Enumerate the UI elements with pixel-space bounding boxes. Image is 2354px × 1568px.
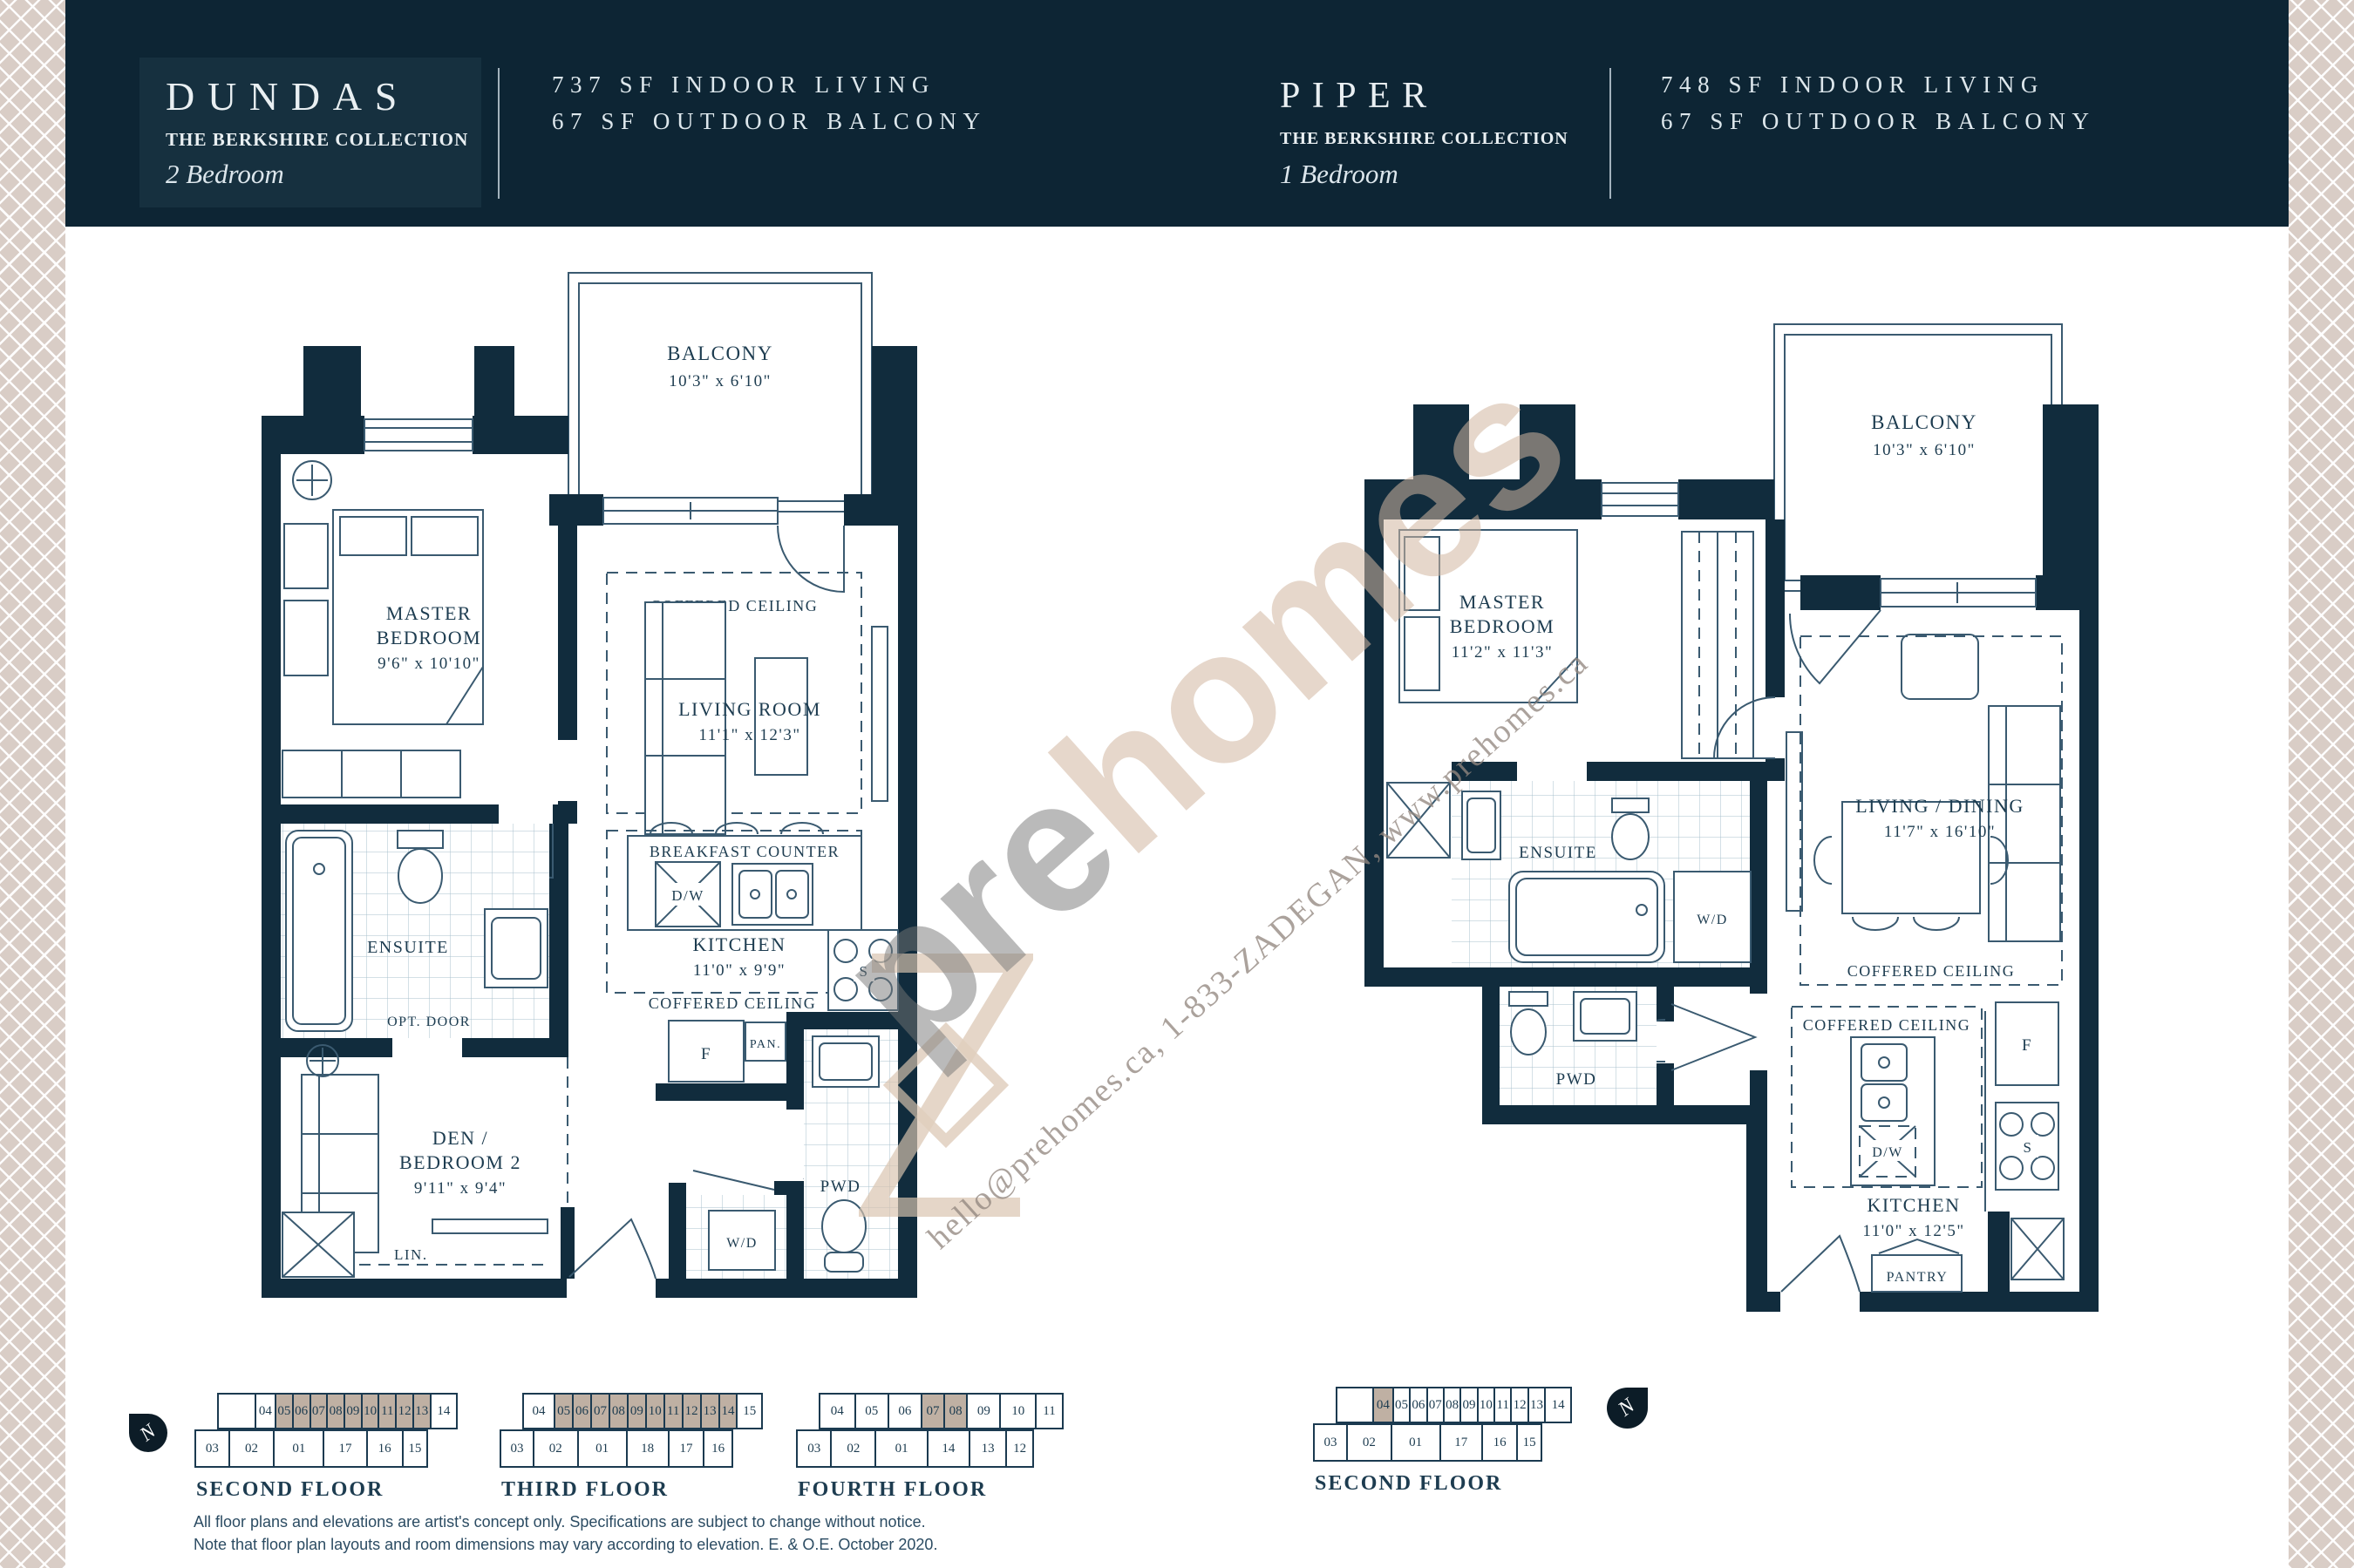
dundas-wd-label: W/D xyxy=(726,1236,758,1251)
header-divider-right xyxy=(1609,68,1611,199)
unit-cell-08: 08 xyxy=(1443,1387,1461,1423)
unit-cell-07: 07 xyxy=(310,1393,329,1429)
unit-cell-08: 08 xyxy=(943,1393,968,1429)
unit-cell-14: 14 xyxy=(927,1429,970,1468)
unit-cell-10: 10 xyxy=(361,1393,380,1429)
dundas-sf-outdoor: 67 SF OUTDOOR BALCONY xyxy=(552,108,987,135)
unit-cell-01: 01 xyxy=(874,1429,929,1468)
piper-coffered-kitchen-label: COFFERED CEILING xyxy=(1803,1016,1971,1034)
piper-wd-label: W/D xyxy=(1697,913,1728,927)
piper-plan-name: PIPER xyxy=(1280,75,1439,117)
unit-cell-13: 13 xyxy=(969,1429,1007,1468)
unit-cell-07: 07 xyxy=(1426,1387,1445,1423)
unit-cell-11: 11 xyxy=(1035,1393,1064,1429)
unit-cell-05: 05 xyxy=(1392,1387,1411,1423)
piper-living-dining: COFFERED CEILING LIVING / DINING 11'7" x… xyxy=(1786,635,2062,985)
unit-cell xyxy=(217,1393,256,1429)
unit-cell-15: 15 xyxy=(736,1393,763,1429)
unit-cell-10: 10 xyxy=(1477,1387,1495,1423)
piper-balcony-dims: 10'3" x 6'10" xyxy=(1873,441,1976,459)
piper-stove-label: S xyxy=(2024,1139,2033,1156)
unit-cell-09: 09 xyxy=(627,1393,647,1429)
dundas-den-label-2: BEDROOM 2 xyxy=(399,1151,521,1173)
unit-cell-14: 14 xyxy=(430,1393,458,1429)
unit-cell-10: 10 xyxy=(645,1393,665,1429)
unit-cell-11: 11 xyxy=(1493,1387,1512,1423)
dundas-kitchen-dims: 11'0" x 9'9" xyxy=(693,961,786,980)
dundas-master-label-1: MASTER xyxy=(386,602,472,624)
unit-cell-09: 09 xyxy=(344,1393,363,1429)
dundas-sf-indoor: 737 SF INDOOR LIVING xyxy=(552,71,935,98)
unit-cell-06: 06 xyxy=(292,1393,311,1429)
floor-locator: 0405060708091011030201141312FOURTH FLOOR xyxy=(798,1393,1064,1502)
unit-cell-09: 09 xyxy=(1459,1387,1478,1423)
dundas-living-dims: 11'1" x 12'3" xyxy=(698,726,800,744)
unit-cell-14: 14 xyxy=(1544,1387,1572,1423)
dundas-breakfast-label: BREAKFAST COUNTER xyxy=(650,843,840,860)
piper-pwd-label: PWD xyxy=(1556,1070,1597,1089)
unit-cell-15: 15 xyxy=(1516,1423,1542,1462)
floor-locator-title: FOURTH FLOOR xyxy=(798,1478,1064,1502)
disclaimer-line-2: Note that floor plan layouts and room di… xyxy=(194,1533,937,1556)
unit-cell-01: 01 xyxy=(577,1429,628,1468)
header-divider-left xyxy=(498,68,500,199)
unit-cell-05: 05 xyxy=(275,1393,294,1429)
piper-dw-label: D/W xyxy=(1872,1145,1903,1160)
unit-cell-16: 16 xyxy=(703,1429,733,1468)
unit-cell-08: 08 xyxy=(609,1393,629,1429)
unit-cell-10: 10 xyxy=(999,1393,1037,1429)
dundas-master-label-2: BEDROOM xyxy=(377,627,482,648)
compass-north-icon: N xyxy=(1607,1388,1648,1429)
unit-cell-12: 12 xyxy=(395,1393,414,1429)
unit-cell-12: 12 xyxy=(1510,1387,1528,1423)
piper-master-dims: 11'2" x 11'3" xyxy=(1452,643,1553,662)
dundas-living-room: COFFERED CEILING LIVING ROOM 11'1" x 12'… xyxy=(607,573,888,834)
unit-cell-11: 11 xyxy=(663,1393,684,1429)
unit-cell-15: 15 xyxy=(402,1429,428,1468)
unit-cell-11: 11 xyxy=(378,1393,397,1429)
dundas-master-bedroom: MASTER BEDROOM 9'6" x 10'10" xyxy=(282,461,483,798)
piper-balcony: BALCONY 10'3" x 6'10" xyxy=(1774,324,2062,591)
piper-fridge-label: F xyxy=(2022,1036,2032,1055)
piper-coffered-living-label: COFFERED CEILING xyxy=(1847,962,2016,980)
dundas-living-label: LIVING ROOM xyxy=(678,698,821,720)
unit-cell-12: 12 xyxy=(1005,1429,1034,1468)
dundas-floor-plan: BALCONY 10'3" x 6'10" xyxy=(262,266,942,1312)
dundas-balcony-label: BALCONY xyxy=(667,343,773,364)
unit-cell-06: 06 xyxy=(888,1393,922,1429)
unit-cell-13: 13 xyxy=(412,1393,432,1429)
unit-cell-02: 02 xyxy=(830,1429,876,1468)
unit-cell-16: 16 xyxy=(366,1429,404,1468)
floor-locator-title: SECOND FLOOR xyxy=(1315,1472,1572,1496)
dundas-dw-label: D/W xyxy=(671,887,704,904)
unit-cell-06: 06 xyxy=(572,1393,592,1429)
unit-cell-17: 17 xyxy=(1439,1423,1483,1462)
piper-living-dims: 11'7" x 16'10" xyxy=(1884,823,1996,841)
unit-cell-01: 01 xyxy=(1391,1423,1441,1462)
unit-cell-13: 13 xyxy=(700,1393,720,1429)
unit-cell-17: 17 xyxy=(323,1429,367,1468)
dundas-den-dims: 9'11" x 9'4" xyxy=(414,1179,507,1198)
piper-kitchen: COFFERED CEILING D/W F S KITCHEN 11'0" x… xyxy=(1792,1002,2064,1292)
unit-cell-18: 18 xyxy=(626,1429,670,1468)
piper-kitchen-dims: 11'0" x 12'5" xyxy=(1862,1222,1964,1240)
unit-cell-01: 01 xyxy=(273,1429,324,1468)
unit-cell-08: 08 xyxy=(326,1393,345,1429)
unit-cell-03: 03 xyxy=(796,1429,832,1468)
unit-cell-06: 06 xyxy=(1409,1387,1427,1423)
unit-cell-02: 02 xyxy=(228,1429,276,1468)
dundas-collection: THE BERKSHIRE COLLECTION xyxy=(166,129,468,151)
dundas-pwd-label: PWD xyxy=(820,1178,861,1196)
dundas-lin-label: LIN. xyxy=(394,1246,428,1263)
dundas-ensuite-label: ENSUITE xyxy=(367,938,449,957)
piper-unit-type: 1 Bedroom xyxy=(1280,159,1398,190)
piper-pantry-label: PANTRY xyxy=(1887,1270,1949,1285)
floorplan-sheet: DUNDAS THE BERKSHIRE COLLECTION 2 Bedroo… xyxy=(0,0,2354,1568)
unit-cell-13: 13 xyxy=(1527,1387,1546,1423)
piper-sf-outdoor: 67 SF OUTDOOR BALCONY xyxy=(1661,108,2096,135)
unit-cell-04: 04 xyxy=(522,1393,555,1429)
unit-cell-14: 14 xyxy=(718,1393,738,1429)
dundas-fridge-label: F xyxy=(701,1045,711,1063)
unit-cell xyxy=(1336,1387,1374,1423)
compass-north-icon: N xyxy=(129,1414,167,1452)
piper-collection: THE BERKSHIRE COLLECTION xyxy=(1280,129,1568,149)
floor-locator: 0405060708091011121314030201171615SECOND… xyxy=(196,1393,458,1502)
disclaimer-line-1: All floor plans and elevations are artis… xyxy=(194,1510,937,1533)
piper-living-label: LIVING / DINING xyxy=(1855,795,2024,817)
unit-cell-05: 05 xyxy=(854,1393,889,1429)
unit-cell-04: 04 xyxy=(1372,1387,1394,1423)
piper-master-label-2: BEDROOM xyxy=(1450,615,1555,637)
unit-cell-02: 02 xyxy=(533,1429,579,1468)
unit-cell-07: 07 xyxy=(590,1393,610,1429)
unit-cell-02: 02 xyxy=(1346,1423,1392,1462)
floor-locator-title: SECOND FLOOR xyxy=(196,1478,458,1502)
piper-sf-indoor: 748 SF INDOOR LIVING xyxy=(1661,71,2044,98)
piper-ensuite-label: ENSUITE xyxy=(1519,844,1597,862)
unit-cell-04: 04 xyxy=(819,1393,856,1429)
unit-cell-17: 17 xyxy=(668,1429,704,1468)
unit-cell-03: 03 xyxy=(1313,1423,1348,1462)
piper-kitchen-label: KITCHEN xyxy=(1867,1194,1960,1216)
floor-locator: 0405060708091011121314030201171615SECOND… xyxy=(1315,1387,1572,1496)
unit-cell-04: 04 xyxy=(255,1393,276,1429)
dundas-plan-name: DUNDAS xyxy=(166,73,410,119)
dundas-balcony: BALCONY 10'3" x 6'10" xyxy=(568,273,872,512)
dundas-coffered-kitchen-label: COFFERED CEILING xyxy=(649,994,817,1012)
dundas-master-dims: 9'6" x 10'10" xyxy=(378,655,480,673)
floor-locator-title: THIRD FLOOR xyxy=(501,1478,763,1502)
unit-cell-03: 03 xyxy=(500,1429,534,1468)
disclaimer: All floor plans and elevations are artis… xyxy=(194,1510,937,1556)
right-chevron-border xyxy=(2289,0,2354,1568)
unit-cell-05: 05 xyxy=(554,1393,574,1429)
unit-cell-09: 09 xyxy=(966,1393,1001,1429)
dundas-den-label-1: DEN / xyxy=(432,1127,488,1149)
dundas-unit-type: 2 Bedroom xyxy=(166,159,284,190)
unit-cell-03: 03 xyxy=(194,1429,230,1468)
unit-cell-12: 12 xyxy=(682,1393,702,1429)
left-chevron-border xyxy=(0,0,65,1568)
dundas-pantry-label: PAN. xyxy=(750,1038,781,1051)
unit-cell-07: 07 xyxy=(921,1393,945,1429)
dundas-kitchen-label: KITCHEN xyxy=(692,933,786,955)
dundas-ensuite: ENSUITE xyxy=(281,824,549,1038)
dundas-balcony-dims: 10'3" x 6'10" xyxy=(669,372,772,390)
unit-cell-16: 16 xyxy=(1481,1423,1519,1462)
dundas-opt-door-label: OPT. DOOR xyxy=(387,1015,471,1029)
floor-locator: 040506070809101112131415030201181716THIR… xyxy=(501,1393,763,1502)
piper-powder-room: PWD xyxy=(1500,987,1657,1105)
piper-balcony-label: BALCONY xyxy=(1871,411,1977,433)
